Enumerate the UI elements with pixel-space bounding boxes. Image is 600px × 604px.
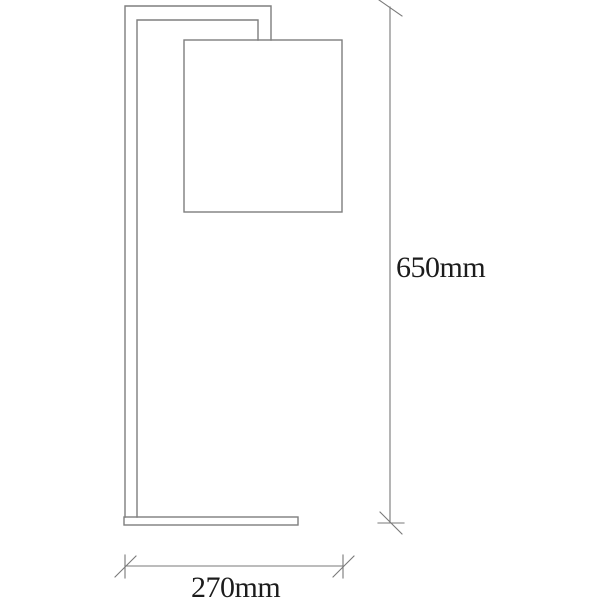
lamp-frame: [125, 6, 271, 517]
lamp-base: [124, 517, 298, 525]
frame-inner-contour: [137, 20, 258, 517]
width-dimension-label: 270mm: [191, 573, 280, 603]
height-dimension-label: 650mm: [396, 253, 485, 283]
drawing-canvas: [0, 0, 600, 600]
lamp-technical-drawing: 650mm 270mm: [0, 0, 600, 600]
lamp-shade: [184, 40, 342, 212]
frame-outer-contour: [125, 6, 271, 517]
